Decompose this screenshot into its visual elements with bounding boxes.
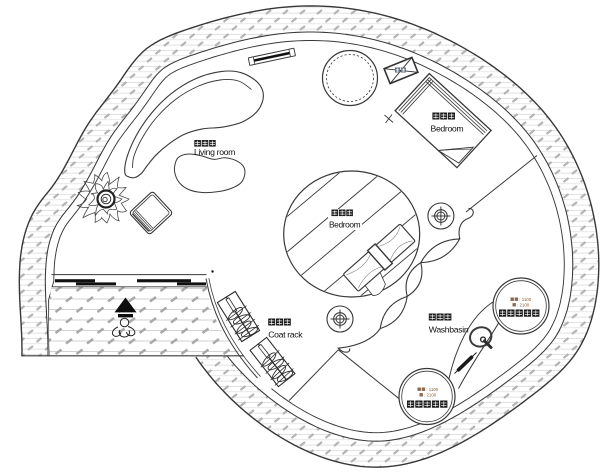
svg-text:: 1100: : 1100	[519, 297, 531, 302]
svg-text:: 2100: : 2100	[517, 303, 530, 308]
svg-text:Bedroom: Bedroom	[329, 220, 361, 230]
svg-text:Bedroom: Bedroom	[431, 124, 464, 134]
svg-text:Living room: Living room	[194, 147, 235, 157]
svg-text:Coat rack: Coat rack	[268, 330, 303, 340]
svg-text:: 2100: : 2100	[424, 393, 437, 398]
svg-text:: 1100: : 1100	[426, 387, 438, 392]
svg-text:Washbasin: Washbasin	[429, 325, 469, 335]
